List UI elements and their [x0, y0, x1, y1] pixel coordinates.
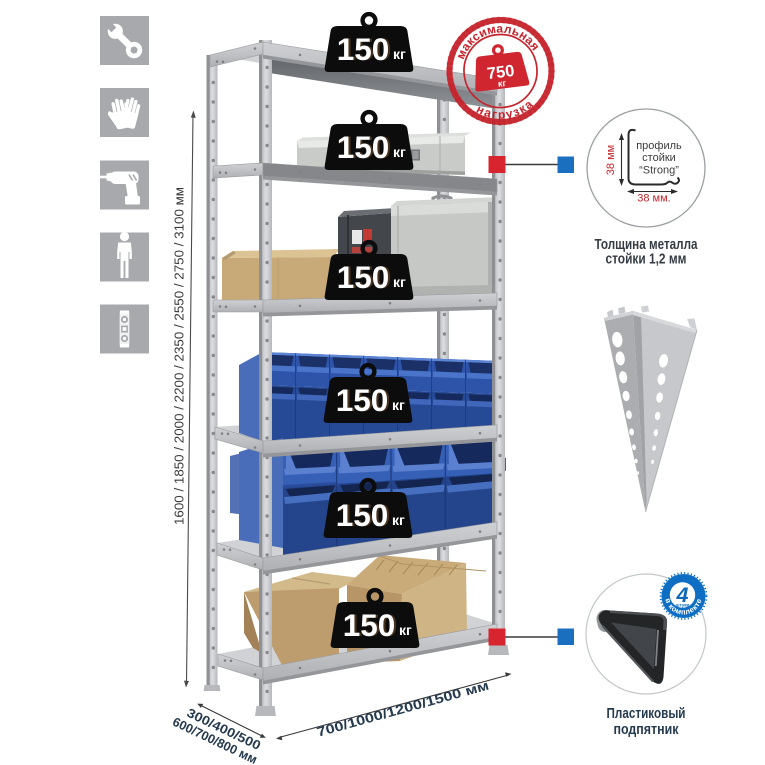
- svg-text:Пластиковый: Пластиковый: [607, 706, 686, 722]
- svg-text:стойки 1,2 мм: стойки 1,2 мм: [606, 252, 687, 268]
- svg-text:38 мм: 38 мм: [605, 145, 617, 175]
- svg-text:150: 150: [337, 129, 390, 165]
- svg-text:150: 150: [343, 607, 396, 643]
- svg-text:150: 150: [336, 497, 389, 533]
- svg-text:кг: кг: [392, 397, 405, 413]
- svg-text:кг: кг: [399, 622, 412, 638]
- svg-text:“Strong”: “Strong”: [639, 165, 679, 177]
- svg-text:150: 150: [337, 259, 390, 295]
- svg-text:штуки: штуки: [676, 603, 690, 608]
- svg-text:150: 150: [336, 382, 389, 418]
- svg-text:кг: кг: [393, 46, 406, 62]
- svg-text:1600 / 1850 / 2000 / 2200 / 23: 1600 / 1850 / 2000 / 2200 / 2350 / 2550 …: [172, 187, 187, 525]
- svg-text:кг: кг: [497, 78, 507, 89]
- svg-text:стойки: стойки: [642, 152, 676, 164]
- svg-text:подпятник: подпятник: [614, 722, 680, 738]
- svg-text:150: 150: [337, 31, 390, 67]
- svg-text:кг: кг: [392, 512, 405, 528]
- svg-text:кг: кг: [393, 144, 406, 160]
- svg-text:профиль: профиль: [636, 140, 682, 152]
- svg-text:кг: кг: [393, 274, 406, 290]
- svg-text:38 мм.: 38 мм.: [637, 193, 670, 205]
